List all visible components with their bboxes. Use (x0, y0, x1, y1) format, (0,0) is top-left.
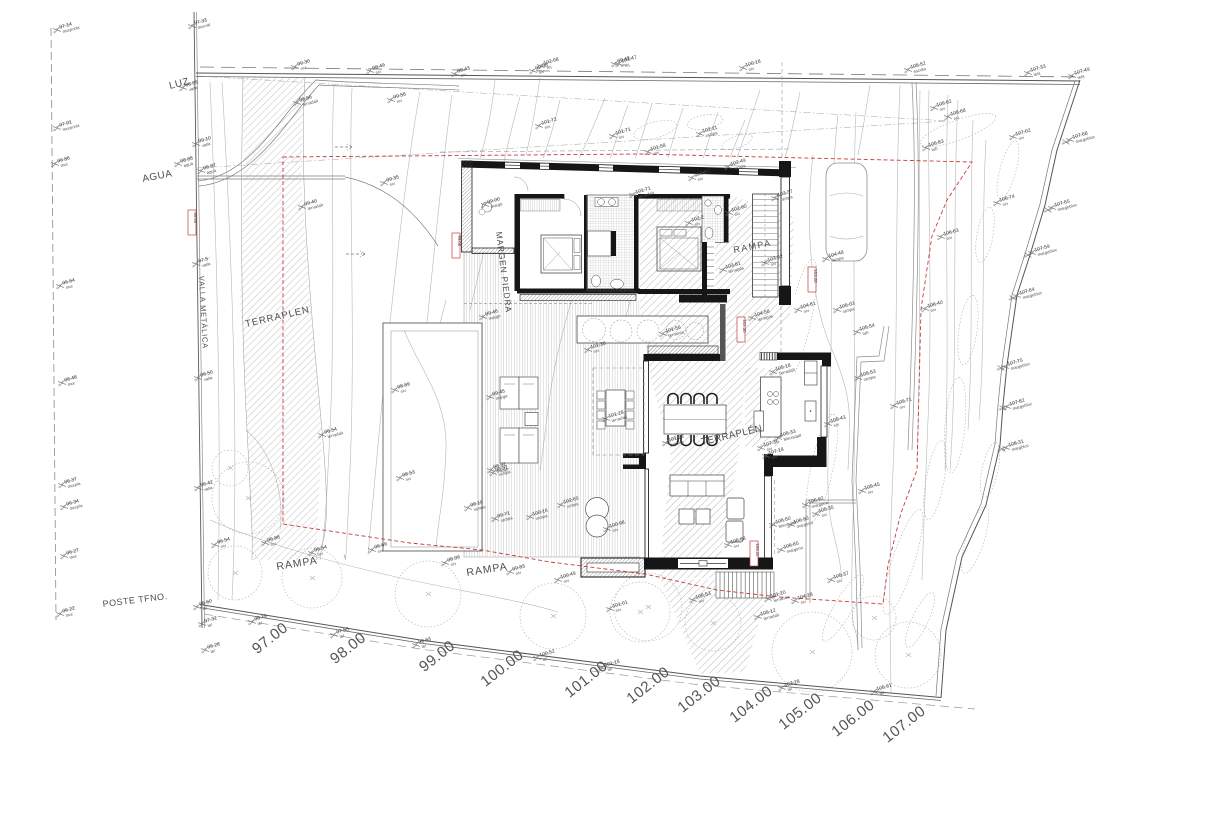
svg-text:99.00: 99.00 (457, 235, 462, 247)
svg-text:103.20: 103.20 (813, 269, 818, 283)
svg-text:105.20: 105.20 (755, 543, 760, 557)
svg-text:98.80: 98.80 (193, 212, 198, 224)
svg-text:102.30: 102.30 (742, 319, 747, 333)
